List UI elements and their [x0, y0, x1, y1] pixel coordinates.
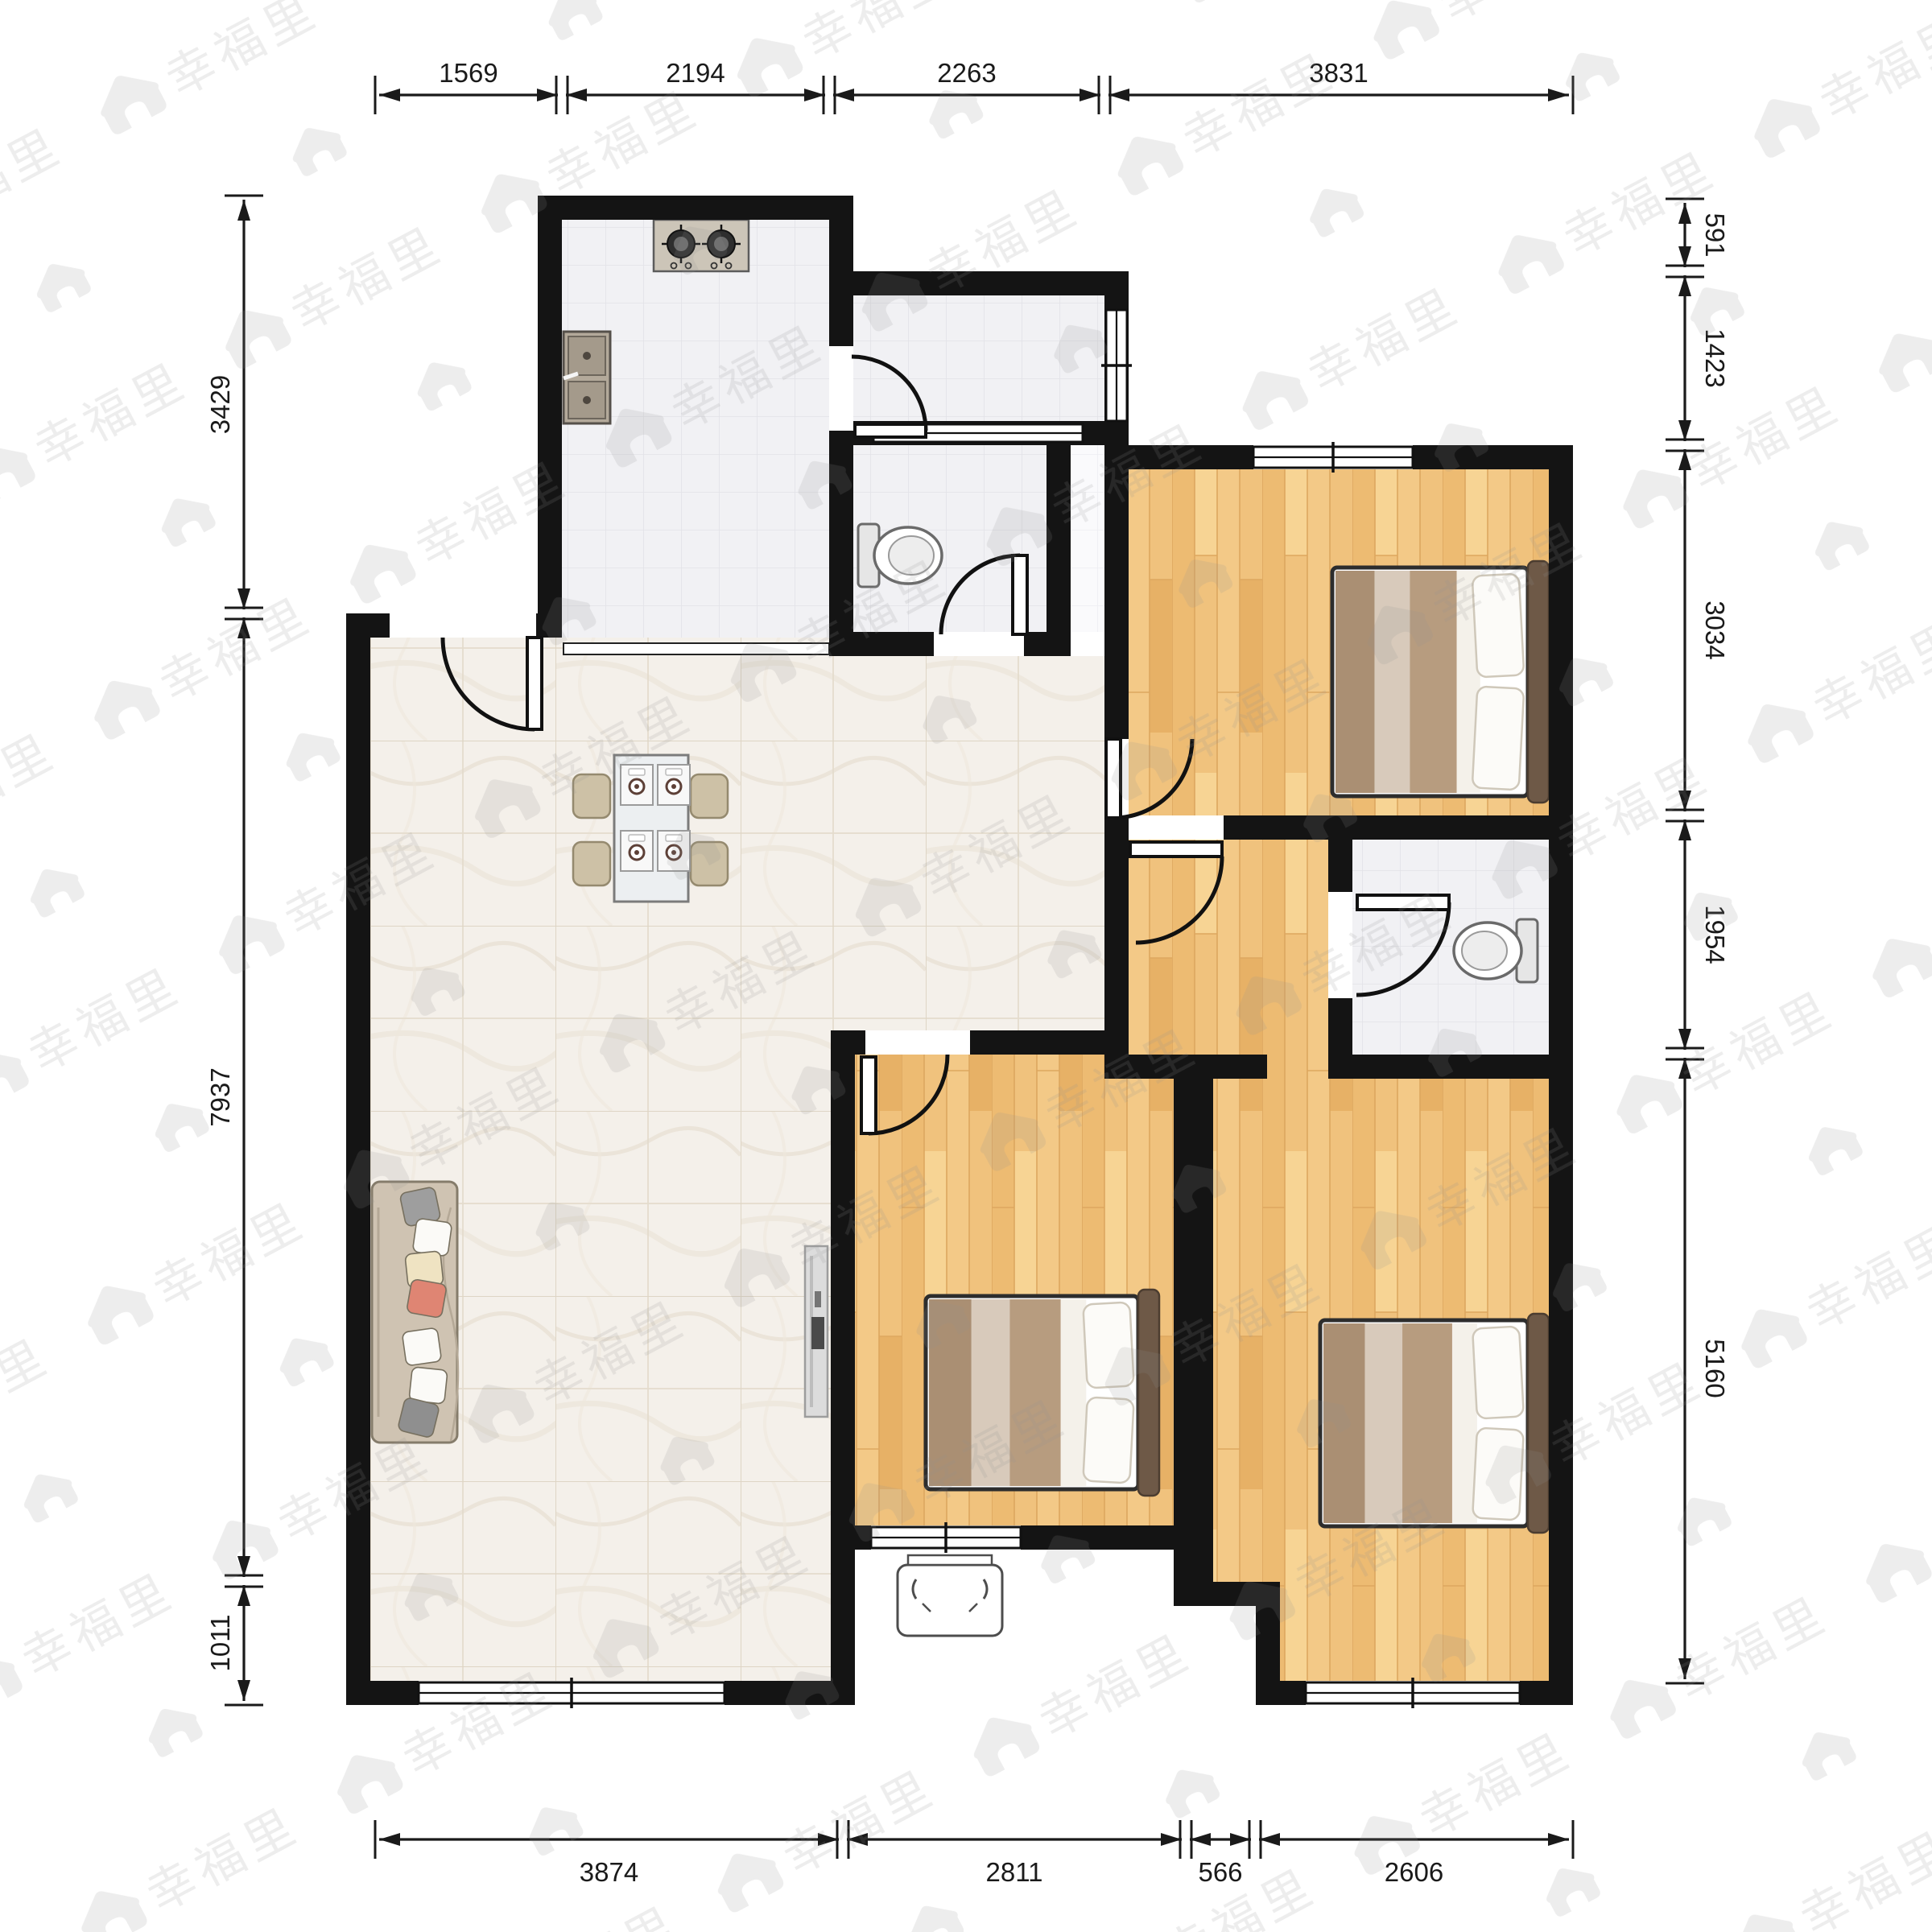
xingfuli-watermark-overlay — [0, 0, 1932, 1932]
floor-plan-canvas: 幸福里 156921942263383138742811566260634297… — [0, 0, 1932, 1932]
floor-plan: 幸福里 156921942263383138742811566260634297… — [0, 0, 1932, 1932]
